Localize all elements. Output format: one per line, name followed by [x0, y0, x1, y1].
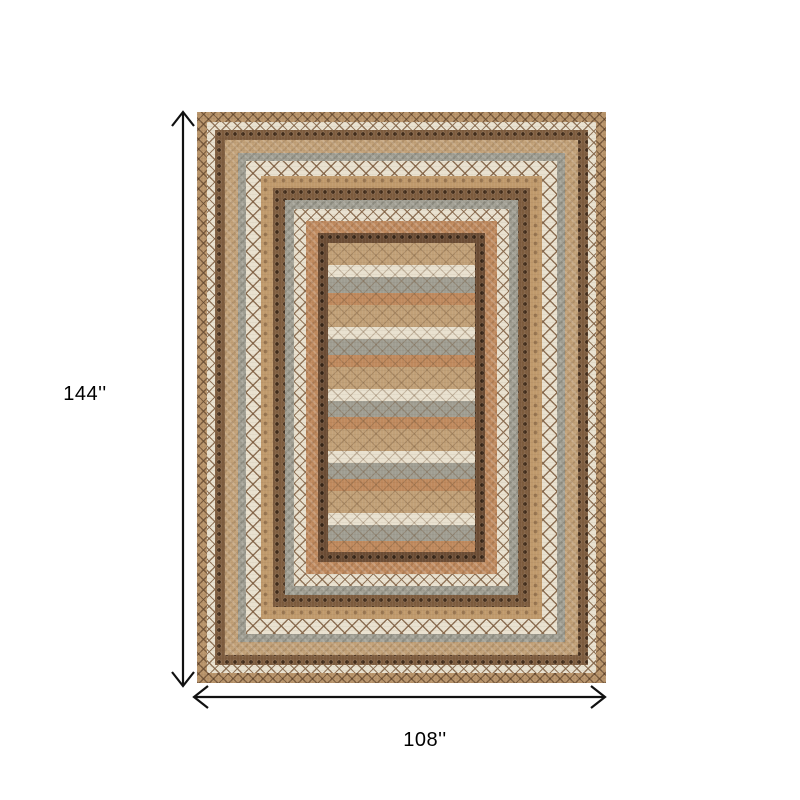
rug-border-band-3: [215, 130, 588, 665]
rug-border-band-10: [294, 209, 509, 586]
rug-border-band-8: [273, 188, 530, 607]
width-arrow-head-left-icon: [194, 686, 208, 708]
rug-border-band-4: [225, 140, 578, 655]
width-dimension-label: 108'': [375, 729, 475, 751]
rug-border-band-6: [246, 161, 557, 634]
rug-border-band-12: [318, 233, 485, 562]
product-dimension-diagram: 144'' 108'': [0, 0, 800, 800]
rug-border-band-2: [207, 122, 596, 673]
rug-border-band-1: [197, 112, 606, 683]
width-arrow-head-right-icon: [591, 686, 605, 708]
rug-image: [197, 112, 606, 683]
width-dimension-arrow: [194, 686, 605, 708]
rug-border-band-9: [285, 200, 518, 595]
height-dimension-label: 144'': [35, 383, 135, 405]
rug-border-band-11: [306, 221, 497, 574]
height-arrow-head-top-icon: [172, 112, 194, 126]
rug-border-band-7: [261, 176, 542, 619]
height-dimension-arrow: [172, 112, 194, 686]
rug-border-band-5: [238, 153, 565, 642]
height-arrow-head-bottom-icon: [172, 672, 194, 686]
rug-center-field: [328, 243, 475, 552]
